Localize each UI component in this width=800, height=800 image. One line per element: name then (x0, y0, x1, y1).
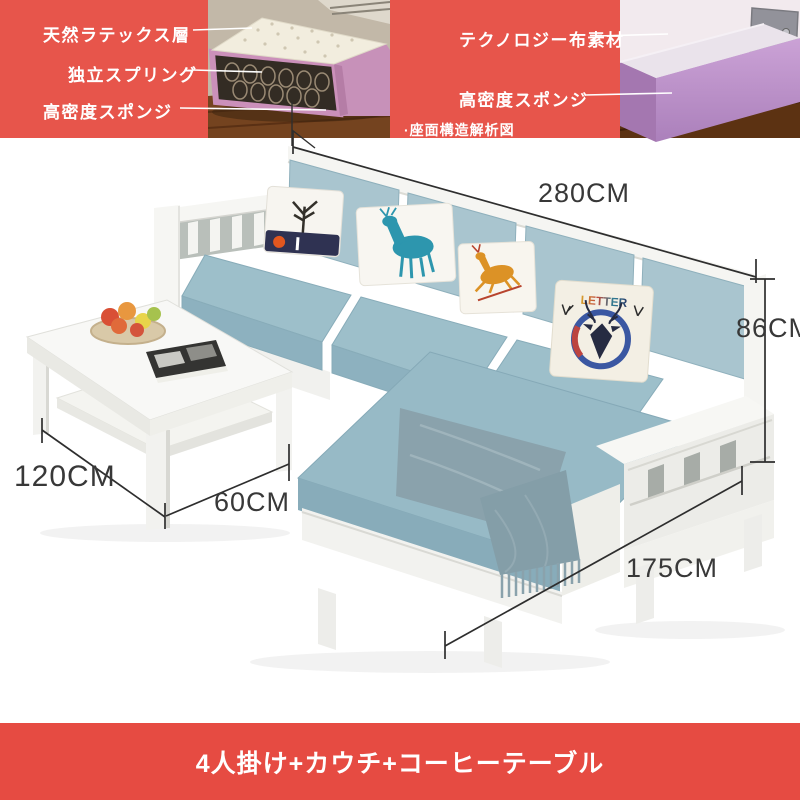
label-high-density-sponge-right: 高密度スポンジ (459, 86, 589, 111)
label-latex-layer: 天然ラテックス層 (43, 21, 191, 46)
dimension-label-86cm: 86CM (736, 313, 800, 344)
label-high-density-sponge-left: 高密度スポンジ (43, 98, 173, 123)
pillow-tree (263, 186, 343, 257)
pillow-deer-orange (458, 241, 536, 314)
dimension-label-175cm: 175CM (626, 553, 718, 584)
pillow-deer-head: LETTER (549, 280, 653, 383)
inset-caption: ·座面構造解析図 (404, 120, 515, 140)
dimension-label-120cm: 120CM (14, 460, 116, 494)
label-tech-fabric: テクノロジー布素材 (459, 26, 624, 51)
inset-mattress-photo (208, 0, 390, 138)
inset-sponge-photo (620, 0, 800, 142)
label-independent-spring: 独立スプリング (68, 61, 198, 86)
product-image: LETTER (0, 0, 800, 800)
pillow-deer-teal (356, 203, 456, 286)
red-panel-right (390, 0, 620, 138)
footer-title: 4人掛け+カウチ+コーヒーテーブル (196, 744, 605, 780)
dimension-label-280cm: 280CM (538, 178, 630, 209)
dimension-label-60cm: 60CM (214, 487, 290, 518)
fruit-plate (91, 302, 165, 344)
footer-banner: 4人掛け+カウチ+コーヒーテーブル (0, 723, 800, 800)
